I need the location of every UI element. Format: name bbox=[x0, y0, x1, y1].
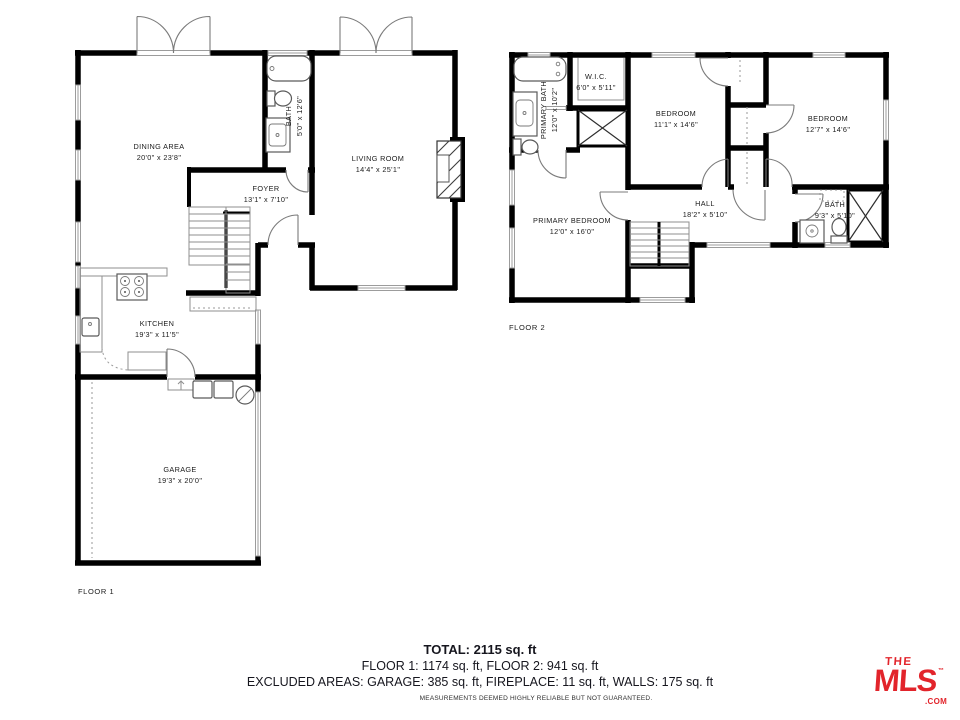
floor-plan-sheet: DINING AREA 20'0" x 23'8" BATH 5'0" x 12… bbox=[0, 0, 960, 720]
linen-closet-xbox bbox=[578, 110, 627, 146]
room-label-garage: GARAGE bbox=[163, 465, 196, 474]
floor2-tag: FLOOR 2 bbox=[509, 323, 545, 332]
toilet-icon bbox=[267, 91, 292, 106]
primary-bathtub-icon bbox=[514, 57, 566, 81]
primary-toilet-icon bbox=[513, 139, 538, 155]
room-label-kitchen: KITCHEN bbox=[140, 319, 174, 328]
room-label-wic: W.I.C. bbox=[585, 72, 607, 81]
bathtub-icon bbox=[267, 56, 311, 81]
room-dims-hall: 18'2" x 5'10" bbox=[683, 210, 728, 219]
room-dims-bath1: 5'0" x 12'6" bbox=[295, 96, 304, 136]
bath2-sink-icon bbox=[800, 220, 824, 243]
floor2-plan: PRIMARY BATH 12'0" x 10'2" W.I.C. 6'0" x… bbox=[509, 52, 889, 332]
kitchen-sink-icon bbox=[82, 318, 99, 336]
stairs-down-floor2 bbox=[630, 222, 689, 266]
summary-excluded: EXCLUDED AREAS: GARAGE: 385 sq. ft, FIRE… bbox=[0, 676, 960, 689]
room-label-dining: DINING AREA bbox=[134, 142, 185, 151]
floor1-tag: FLOOR 1 bbox=[78, 587, 114, 596]
room-dims-bedroom-left: 11'1" x 14'6" bbox=[654, 120, 698, 129]
stove-icon bbox=[117, 274, 147, 300]
primary-vanity-icon bbox=[513, 92, 537, 136]
room-label-bedroom-left: BEDROOM bbox=[656, 109, 696, 118]
room-dims-living: 14'4" x 25'1" bbox=[356, 165, 401, 174]
room-label-foyer: FOYER bbox=[253, 184, 280, 193]
summary-floors: FLOOR 1: 1174 sq. ft, FLOOR 2: 941 sq. f… bbox=[0, 660, 960, 673]
mls-logo-com: .COM bbox=[925, 697, 947, 706]
room-label-bedroom-right: BEDROOM bbox=[808, 114, 848, 123]
room-dims-dining: 20'0" x 23'8" bbox=[137, 153, 182, 162]
room-label-living: LIVING ROOM bbox=[352, 154, 405, 163]
room-dims-primary-bedroom: 12'0" x 16'0" bbox=[550, 227, 595, 236]
porch bbox=[190, 297, 256, 311]
washer-icon bbox=[193, 381, 212, 398]
summary-disclaimer: MEASUREMENTS DEEMED HIGHLY RELIABLE BUT … bbox=[56, 696, 960, 703]
french-doors bbox=[137, 17, 412, 56]
floor-plan-canvas: DINING AREA 20'0" x 23'8" BATH 5'0" x 12… bbox=[0, 0, 960, 720]
room-label-primary-bath: PRIMARY BATH bbox=[539, 81, 548, 139]
room-dims-primary-bath: 12'0" x 10'2" bbox=[550, 88, 559, 133]
room-dims-kitchen: 19'3" x 11'5" bbox=[135, 330, 179, 339]
mls-logo: THE MLS ™ .COM bbox=[874, 656, 954, 710]
room-label-primary-bedroom: PRIMARY BEDROOM bbox=[533, 216, 611, 225]
room-dims-wic: 6'0" x 5'11" bbox=[576, 83, 616, 92]
room-label-bath1: BATH bbox=[284, 106, 293, 126]
bath2-toilet-icon bbox=[831, 219, 847, 244]
room-label-bath2: BATH bbox=[825, 200, 845, 209]
room-label-hall: HALL bbox=[695, 199, 715, 208]
room-dims-bedroom-right: 12'7" x 14'6" bbox=[806, 125, 851, 134]
room-dims-garage: 19'3" x 20'0" bbox=[158, 476, 203, 485]
room-dims-bath2: 9'3" x 5'10" bbox=[815, 211, 855, 220]
floor1-plan: DINING AREA 20'0" x 23'8" BATH 5'0" x 12… bbox=[75, 17, 465, 597]
dryer-icon bbox=[214, 381, 233, 398]
mls-logo-tm: ™ bbox=[938, 668, 944, 674]
water-heater-icon bbox=[236, 386, 254, 404]
summary-total: TOTAL: 2115 sq. ft bbox=[0, 643, 960, 656]
fireplace-icon bbox=[437, 137, 465, 202]
mls-logo-mls: MLS bbox=[873, 663, 938, 699]
stairs-up-floor1 bbox=[189, 207, 250, 293]
room-dims-foyer: 13'1" x 7'10" bbox=[244, 195, 289, 204]
floor1-windows bbox=[76, 51, 406, 557]
